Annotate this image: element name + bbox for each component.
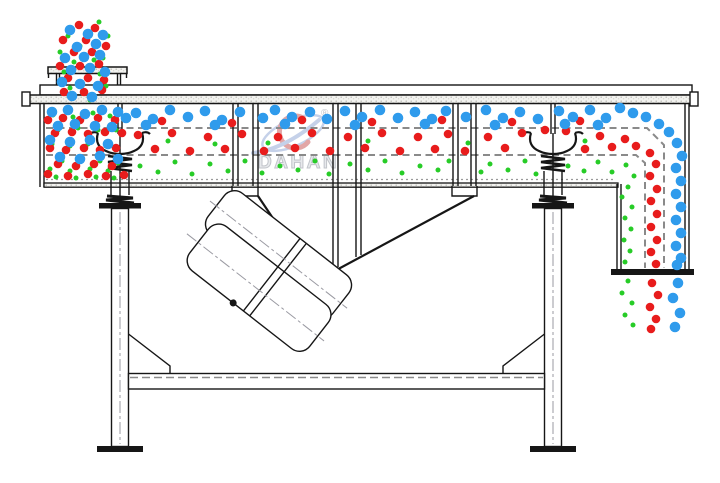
- green-particle: [418, 164, 423, 169]
- red-particle: [646, 172, 655, 181]
- red-particle: [228, 119, 237, 128]
- green-particle: [623, 313, 628, 318]
- red-particle: [344, 133, 353, 142]
- blue-particle: [67, 91, 78, 102]
- green-particle: [400, 171, 405, 176]
- red-particle: [168, 129, 177, 138]
- green-particle: [566, 164, 571, 169]
- left-wall: [40, 104, 44, 188]
- blue-particle: [672, 260, 683, 271]
- red-particle: [652, 260, 661, 269]
- blue-particle: [75, 154, 86, 165]
- red-particle: [648, 279, 657, 288]
- green-particle: [260, 171, 265, 176]
- spring-left: [90, 132, 150, 208]
- red-particle: [102, 172, 111, 181]
- red-particle: [608, 143, 617, 152]
- blue-particle: [641, 112, 652, 123]
- bracket-hanger-straps: [333, 185, 361, 268]
- green-particle: [623, 260, 628, 265]
- blue-particle: [280, 119, 291, 130]
- red-particle: [260, 147, 269, 156]
- blue-particle: [87, 92, 98, 103]
- green-particle: [632, 174, 637, 179]
- red-particle: [76, 62, 85, 71]
- green-particle: [623, 216, 628, 221]
- green-particle: [58, 50, 63, 55]
- blue-particle: [95, 151, 106, 162]
- spring-rod-right-upper: [551, 104, 555, 135]
- hanger-bar-1: [232, 104, 258, 197]
- red-particle: [647, 223, 656, 232]
- green-particle: [72, 60, 77, 65]
- blue-particle: [671, 189, 682, 200]
- green-particle: [327, 172, 332, 177]
- green-particle: [94, 175, 99, 180]
- green-particle: [506, 168, 511, 173]
- rail-right-end-cap: [690, 92, 698, 106]
- blue-particle: [270, 105, 281, 116]
- blue-particle: [554, 106, 565, 117]
- blue-particle: [585, 105, 596, 116]
- red-particle: [298, 116, 307, 125]
- red-particle: [653, 236, 662, 245]
- green-particle: [348, 162, 353, 167]
- blue-particle: [441, 106, 452, 117]
- green-particle: [138, 164, 143, 169]
- red-particle: [652, 160, 661, 169]
- green-particle: [466, 141, 471, 146]
- red-particle: [118, 129, 127, 138]
- blue-particle: [131, 108, 142, 119]
- blue-particle: [615, 103, 626, 114]
- blue-particle: [72, 42, 83, 53]
- left-gusset: [129, 334, 171, 374]
- blue-particle: [593, 120, 604, 131]
- discharge-chute-right-wall: [685, 104, 689, 270]
- green-particle: [156, 170, 161, 175]
- blue-particle: [677, 151, 688, 162]
- red-particle: [461, 147, 470, 156]
- green-particle: [313, 159, 318, 164]
- green-particle: [622, 238, 627, 243]
- blue-particle: [568, 112, 579, 123]
- top-rail: [26, 95, 692, 104]
- red-particle: [581, 145, 590, 154]
- blue-particle: [340, 106, 351, 117]
- blue-particle: [113, 154, 124, 165]
- blue-particle: [420, 119, 431, 130]
- green-particle: [173, 160, 178, 165]
- green-particle: [583, 139, 588, 144]
- blue-particle: [91, 39, 102, 50]
- red-particle: [221, 145, 230, 154]
- red-particle: [84, 170, 93, 179]
- green-particle: [631, 323, 636, 328]
- green-particle: [208, 162, 213, 167]
- red-particle: [378, 129, 387, 138]
- vibrating-screen-diagram: ® DAHAN: [0, 0, 720, 483]
- blue-particle: [93, 81, 104, 92]
- support-frame: [97, 209, 576, 453]
- red-particle: [120, 171, 129, 180]
- green-particle: [366, 168, 371, 173]
- blue-particle: [100, 67, 111, 78]
- green-particle: [383, 159, 388, 164]
- red-particle: [80, 144, 89, 153]
- green-particle: [166, 139, 171, 144]
- green-particle: [629, 227, 634, 232]
- red-particle: [134, 131, 143, 140]
- right-foot-plate: [530, 446, 576, 452]
- red-particle: [438, 116, 447, 125]
- green-particle: [626, 185, 631, 190]
- blue-particle: [676, 228, 687, 239]
- blue-particle: [79, 52, 90, 63]
- red-particle: [647, 197, 656, 206]
- blue-particle: [676, 202, 687, 213]
- green-particle: [630, 205, 635, 210]
- box-bottom-plate: [44, 183, 618, 187]
- blue-particle: [305, 107, 316, 118]
- blue-particle: [671, 241, 682, 252]
- blue-particle: [357, 112, 368, 123]
- blue-particle: [515, 107, 526, 118]
- green-particle: [523, 159, 528, 164]
- red-particle: [368, 118, 377, 127]
- blue-particle: [671, 215, 682, 226]
- green-particle: [624, 163, 629, 168]
- red-particle: [95, 60, 104, 69]
- red-particle: [647, 248, 656, 257]
- blue-particle: [601, 113, 612, 124]
- red-particle: [501, 144, 510, 153]
- blue-particle: [85, 135, 96, 146]
- green-particle: [243, 159, 248, 164]
- green-particle: [97, 20, 102, 25]
- blue-particle: [103, 139, 114, 150]
- red-particle: [274, 133, 283, 142]
- blue-particle: [235, 107, 246, 118]
- blue-particle: [47, 107, 58, 118]
- blue-particle: [350, 120, 361, 131]
- red-particle: [151, 145, 160, 154]
- blue-particle: [393, 113, 404, 124]
- blue-particle: [65, 137, 76, 148]
- green-particle: [630, 301, 635, 306]
- green-particle: [582, 169, 587, 174]
- blue-particle: [200, 106, 211, 117]
- green-particle: [626, 279, 631, 284]
- red-particle: [444, 130, 453, 139]
- blue-particle: [55, 152, 66, 163]
- right-gusset: [503, 334, 545, 374]
- blue-particle: [671, 163, 682, 174]
- blue-particle: [53, 121, 64, 132]
- discharge-chute-rim: [611, 269, 694, 275]
- red-particle: [84, 74, 93, 83]
- red-particle: [44, 170, 53, 179]
- blue-particle: [375, 105, 386, 116]
- red-particle: [238, 130, 247, 139]
- red-particle: [632, 142, 641, 151]
- red-particle: [56, 62, 65, 71]
- blue-particle: [654, 119, 665, 130]
- red-particle: [484, 133, 493, 142]
- red-particle: [414, 133, 423, 142]
- blue-particle: [481, 105, 492, 116]
- red-particle: [186, 147, 195, 156]
- blue-particle: [75, 79, 86, 90]
- blue-particle: [672, 138, 683, 149]
- top-frame: [22, 85, 698, 106]
- red-particle: [518, 129, 527, 138]
- red-particle: [621, 135, 630, 144]
- blue-particle: [85, 63, 96, 74]
- red-particle: [653, 185, 662, 194]
- blue-particle: [66, 65, 77, 76]
- spring-lower-clamp: [106, 196, 134, 203]
- spring-seat-plate: [99, 203, 141, 209]
- green-particle: [628, 249, 633, 254]
- blue-particle: [258, 113, 269, 124]
- blue-particle: [98, 30, 109, 41]
- green-particle: [54, 175, 59, 180]
- red-particle: [102, 42, 111, 51]
- green-particle: [596, 160, 601, 165]
- cross-beam: [129, 374, 545, 390]
- red-particle: [431, 145, 440, 154]
- blue-particle: [80, 109, 91, 120]
- red-particle: [646, 149, 655, 158]
- top-cover-plate: [40, 85, 692, 95]
- blue-particle: [628, 108, 639, 119]
- green-particle: [534, 172, 539, 177]
- blue-particle: [60, 53, 71, 64]
- green-particle: [436, 168, 441, 173]
- blue-particle: [57, 77, 68, 88]
- blue-particle: [45, 135, 56, 146]
- green-particle: [68, 86, 73, 91]
- blue-particle: [490, 120, 501, 131]
- red-particle: [308, 129, 317, 138]
- red-particle: [596, 132, 605, 141]
- red-particle: [541, 126, 550, 135]
- blue-particle: [165, 105, 176, 116]
- red-particle: [647, 325, 656, 334]
- red-particle: [396, 147, 405, 156]
- red-particle: [361, 144, 370, 153]
- green-particle: [620, 291, 625, 296]
- red-particle: [64, 172, 73, 181]
- blue-particle: [83, 29, 94, 40]
- green-particle: [620, 195, 625, 200]
- blue-particle: [668, 293, 679, 304]
- particles-layer: [44, 20, 688, 334]
- blue-particle: [461, 112, 472, 123]
- green-particle: [296, 168, 301, 173]
- green-particle: [190, 172, 195, 177]
- red-particle: [75, 21, 84, 30]
- blue-particle: [141, 120, 152, 131]
- green-particle: [366, 139, 371, 144]
- red-particle: [646, 303, 655, 312]
- left-foot-plate: [97, 446, 143, 452]
- green-particle: [278, 164, 283, 169]
- green-particle: [479, 170, 484, 175]
- blue-particle: [90, 121, 101, 132]
- blue-particle: [322, 114, 333, 125]
- blue-particle: [107, 122, 118, 133]
- blue-particle: [676, 176, 687, 187]
- blue-particle: [498, 113, 509, 124]
- blue-particle: [664, 127, 675, 138]
- blue-particle: [95, 50, 106, 61]
- blue-particle: [410, 107, 421, 118]
- green-particle: [226, 169, 231, 174]
- red-particle: [508, 118, 517, 127]
- green-particle: [447, 159, 452, 164]
- green-particle: [112, 176, 117, 181]
- red-particle: [59, 36, 68, 45]
- red-particle: [90, 160, 99, 169]
- blue-particle: [70, 119, 81, 130]
- blue-particle: [673, 278, 684, 289]
- blue-particle: [670, 322, 681, 333]
- rail-left-end-cap: [22, 92, 30, 106]
- green-particle: [74, 176, 79, 181]
- green-particle: [213, 142, 218, 147]
- red-particle: [652, 315, 661, 324]
- diagram-canvas: ® DAHAN: [0, 0, 720, 483]
- red-particle: [326, 147, 335, 156]
- green-particle: [488, 162, 493, 167]
- red-particle: [204, 133, 213, 142]
- bracket-right-arm: [316, 196, 474, 281]
- blue-particle: [97, 105, 108, 116]
- green-particle: [91, 111, 96, 116]
- red-particle: [291, 144, 300, 153]
- blue-particle: [560, 119, 571, 130]
- spring-right: [523, 132, 583, 208]
- red-particle: [654, 291, 663, 300]
- blue-particle: [675, 308, 686, 319]
- blue-particle: [183, 112, 194, 123]
- red-particle: [653, 210, 662, 219]
- green-particle: [266, 141, 271, 146]
- blue-particle: [65, 25, 76, 36]
- red-particle: [59, 114, 68, 123]
- blue-particle: [210, 120, 221, 131]
- red-particle: [158, 117, 167, 126]
- blue-particle: [121, 113, 132, 124]
- blue-particle: [63, 105, 74, 116]
- green-particle: [610, 170, 615, 175]
- blue-particle: [533, 114, 544, 125]
